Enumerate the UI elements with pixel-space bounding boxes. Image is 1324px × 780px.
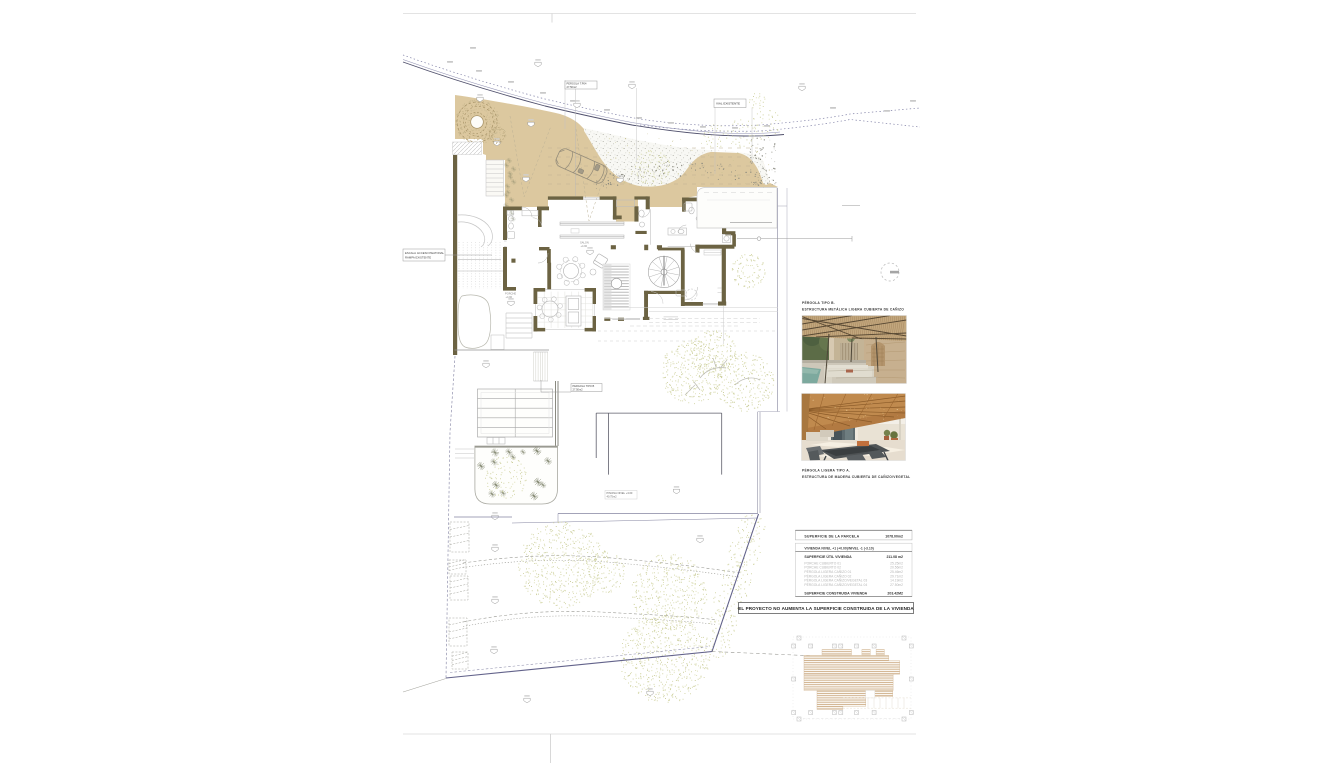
svg-text:27.50m2: 27.50m2: [573, 387, 584, 391]
svg-text:27.50m2: 27.50m2: [567, 85, 578, 89]
svg-text:PÉRGOLA TIPO B.: PÉRGOLA TIPO B.: [802, 300, 835, 305]
svg-text:+4.90: +4.90: [581, 244, 588, 248]
svg-text:PORCHE CUBIERTO 02: PORCHE CUBIERTO 02: [804, 566, 841, 570]
svg-text:+4.90: +4.90: [506, 295, 513, 299]
svg-text:ESCALA ACCESO PEATONAL: ESCALA ACCESO PEATONAL: [405, 251, 445, 255]
svg-text:211.08 m2: 211.08 m2: [886, 555, 903, 559]
svg-text:203.42M2: 203.42M2: [887, 591, 903, 595]
svg-text:PERGOLA TIPO B: PERGOLA TIPO B: [573, 384, 595, 388]
svg-text:40.75m2: 40.75m2: [607, 495, 618, 499]
svg-text:20.56m2: 20.56m2: [890, 566, 903, 570]
svg-text:PÉRGOLA LIGERA CAÑIZO/VEGETAL: PÉRGOLA LIGERA CAÑIZO/VEGETAL 04: [804, 582, 867, 587]
svg-text:PERGOLA T.P04: PERGOLA T.P04: [567, 82, 587, 86]
svg-text:PISCINA NIVEL +3.60: PISCINA NIVEL +3.60: [607, 491, 633, 495]
svg-text:VIVIENDA NIVEL +1 (+0.00)/NIVE: VIVIENDA NIVEL +1 (+0.00)/NIVEL -1 (-3.1…: [804, 546, 873, 550]
svg-text:14.19m2: 14.19m2: [890, 579, 903, 583]
svg-text:VIAL EXISTENTE: VIAL EXISTENTE: [716, 102, 740, 106]
svg-text:PÉRGOLA LIGERA TIPO A.: PÉRGOLA LIGERA TIPO A.: [802, 468, 850, 473]
svg-text:27.50m2: 27.50m2: [890, 583, 903, 587]
svg-text:RAMPA EXISTENTE: RAMPA EXISTENTE: [405, 256, 431, 260]
svg-text:PÉRGOLA LIGERA CAÑIZO/VEGETAL: PÉRGOLA LIGERA CAÑIZO/VEGETAL 03: [804, 578, 867, 583]
svg-text:EL PROYECTO NO AUMENTA LA SUPE: EL PROYECTO NO AUMENTA LA SUPERFICIE CON…: [738, 606, 914, 611]
svg-text:PÉRGOLA LIGERA CAÑIZO 02: PÉRGOLA LIGERA CAÑIZO 02: [804, 573, 851, 578]
svg-text:SUPERFICIE ÚTIL VIVIENDA: SUPERFICIE ÚTIL VIVIENDA: [804, 554, 852, 559]
svg-text:PÉRGOLA LIGERA CAÑIZO 01: PÉRGOLA LIGERA CAÑIZO 01: [804, 569, 851, 574]
svg-text:SUPERFICIE DE LA PARCELA: SUPERFICIE DE LA PARCELA: [804, 534, 859, 538]
svg-text:25.46m2: 25.46m2: [890, 570, 903, 574]
svg-text:SUPERFICIE CONSTRUIDA VIVIENDA: SUPERFICIE CONSTRUIDA VIVIENDA: [804, 591, 867, 595]
svg-text:1078.00m2: 1078.00m2: [885, 534, 903, 538]
svg-text:ESTRUCTURA METÁLICA LIGERA CUB: ESTRUCTURA METÁLICA LIGERA CUBIERTA DE C…: [802, 307, 904, 312]
svg-text:ESTRUCTURA DE MADERA CUBIERTA: ESTRUCTURA DE MADERA CUBIERTA DE CAÑIZO/…: [802, 474, 910, 479]
